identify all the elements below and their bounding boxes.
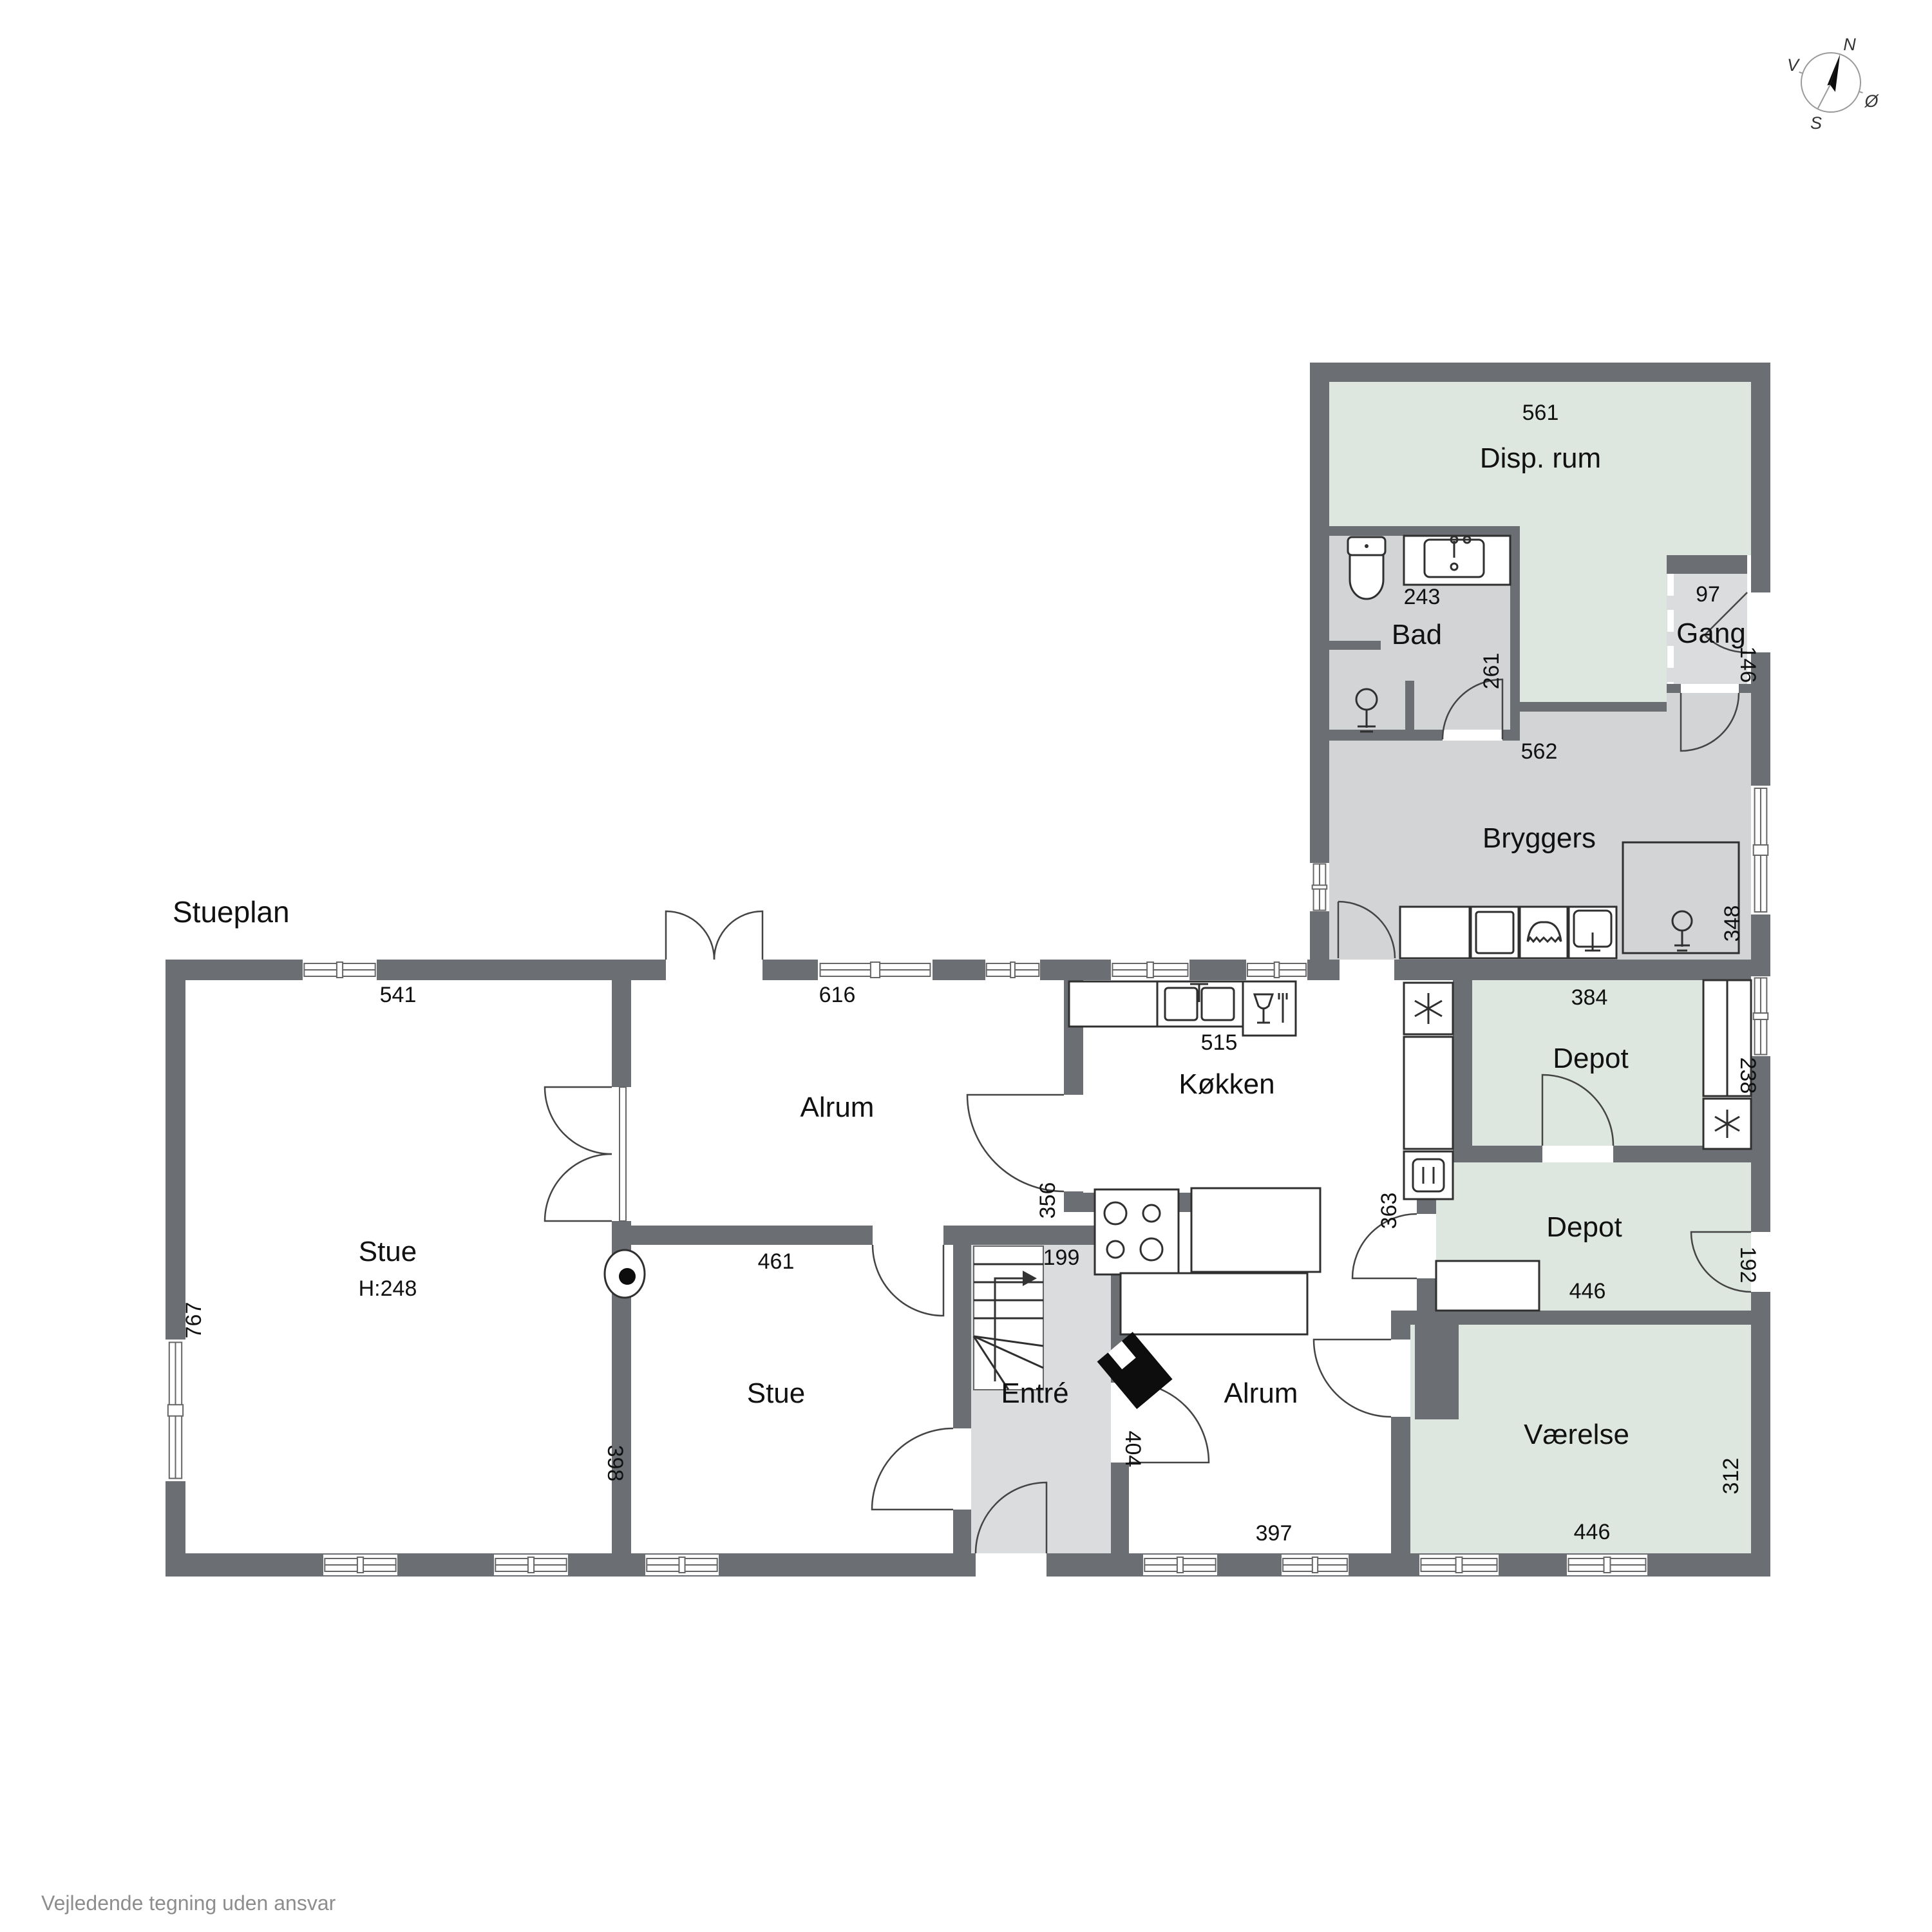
dim-363: 363	[1377, 1193, 1401, 1229]
label-vaerelse: Værelse	[1524, 1419, 1629, 1450]
dim-384: 384	[1571, 985, 1608, 1010]
washing-machine-icon	[1471, 907, 1519, 958]
dim-404: 404	[1121, 1431, 1145, 1468]
dim-561: 561	[1522, 401, 1559, 425]
label-gang: Gang	[1676, 618, 1746, 649]
window	[985, 960, 1040, 980]
compass-east: Ø	[1864, 91, 1879, 111]
label-stue-bottom: Stue	[747, 1378, 806, 1409]
dim-616: 616	[819, 983, 856, 1007]
dim-97: 97	[1696, 582, 1720, 607]
window	[1751, 976, 1770, 1056]
window	[1111, 960, 1189, 980]
window	[303, 960, 377, 980]
dim-199: 199	[1043, 1245, 1080, 1270]
dim-461: 461	[758, 1249, 795, 1274]
compass-south: S	[1810, 113, 1822, 133]
dim-243: 243	[1404, 585, 1441, 609]
window	[1246, 960, 1307, 980]
dim-397: 397	[1256, 1521, 1293, 1546]
kitchen-sink-icon	[1157, 981, 1243, 1027]
door-stue-bottom	[873, 1245, 943, 1316]
window	[1282, 1555, 1349, 1575]
disclaimer-text: Vejledende tegning uden ansvar	[41, 1891, 336, 1915]
fridge-icon	[1404, 983, 1453, 1034]
dim-146: 146	[1736, 647, 1760, 683]
floor-plan-drawing: Stueplan Vejledende tegning uden ansvar …	[0, 0, 1932, 1932]
window	[1567, 1555, 1647, 1575]
chimney-block	[1415, 1325, 1459, 1419]
dim-238: 238	[1736, 1057, 1760, 1094]
label-bryggers: Bryggers	[1482, 822, 1596, 854]
label-stue-left: Stue	[359, 1236, 417, 1267]
toilet-icon	[1348, 537, 1385, 599]
dim-398: 398	[603, 1445, 627, 1482]
window	[1143, 1555, 1217, 1575]
dishwasher-icon	[1243, 981, 1296, 1036]
oven-icon	[1404, 1151, 1453, 1199]
door-entre-stue	[872, 1428, 953, 1510]
window	[494, 1555, 568, 1575]
dim-767: 767	[182, 1302, 206, 1339]
ceiling-height: H:248	[359, 1276, 417, 1301]
window	[1751, 786, 1770, 914]
counter	[1400, 907, 1470, 958]
stove-icon	[1095, 1189, 1179, 1274]
dim-261: 261	[1479, 653, 1504, 690]
dim-515: 515	[1201, 1030, 1238, 1055]
kitchen-island	[1191, 1188, 1320, 1272]
label-depot-south: Depot	[1546, 1211, 1622, 1243]
kitchen-counter	[1069, 981, 1157, 1027]
dryer-icon	[1520, 907, 1567, 958]
window	[323, 1555, 397, 1575]
dim-562: 562	[1521, 739, 1558, 764]
laundry-sink-icon	[1569, 907, 1616, 958]
label-koekken: Køkken	[1179, 1068, 1274, 1100]
round-stove-icon	[605, 1250, 645, 1298]
french-doors	[666, 911, 762, 960]
dim-192: 192	[1736, 1247, 1760, 1283]
label-bad: Bad	[1392, 619, 1442, 650]
dim-541: 541	[380, 983, 417, 1007]
label-entre: Entré	[1001, 1378, 1068, 1409]
door-alrum-koekken	[967, 1095, 1064, 1191]
window	[1419, 1555, 1499, 1575]
window	[818, 960, 933, 980]
compass-icon: N S Ø V	[1787, 35, 1880, 133]
label-alrum-top: Alrum	[800, 1092, 875, 1123]
compass-west: V	[1787, 55, 1801, 75]
dim-446-top: 446	[1569, 1279, 1606, 1303]
freezer-icon	[1703, 1099, 1751, 1149]
window	[645, 1555, 719, 1575]
dim-356: 356	[1036, 1182, 1060, 1219]
dim-348: 348	[1720, 905, 1745, 942]
dim-312: 312	[1719, 1458, 1743, 1495]
page-title: Stueplan	[173, 895, 290, 929]
floor-plan-page: Stueplan Vejledende tegning uden ansvar …	[0, 0, 1932, 1932]
dim-446-bottom: 446	[1574, 1520, 1611, 1544]
tall-cabinet	[1404, 1037, 1453, 1149]
window	[166, 1340, 185, 1481]
wardrobe-depot-south	[1436, 1261, 1539, 1311]
label-depot-north: Depot	[1553, 1043, 1628, 1074]
bathroom-sink-icon	[1404, 536, 1510, 585]
label-disp-rum: Disp. rum	[1480, 442, 1601, 474]
compass-north: N	[1843, 35, 1856, 54]
window	[1310, 863, 1329, 911]
door-vaerelse	[1314, 1340, 1391, 1417]
kitchen-island-counter	[1121, 1273, 1307, 1334]
label-alrum-bottom: Alrum	[1224, 1378, 1298, 1409]
stairs	[974, 1246, 1043, 1390]
